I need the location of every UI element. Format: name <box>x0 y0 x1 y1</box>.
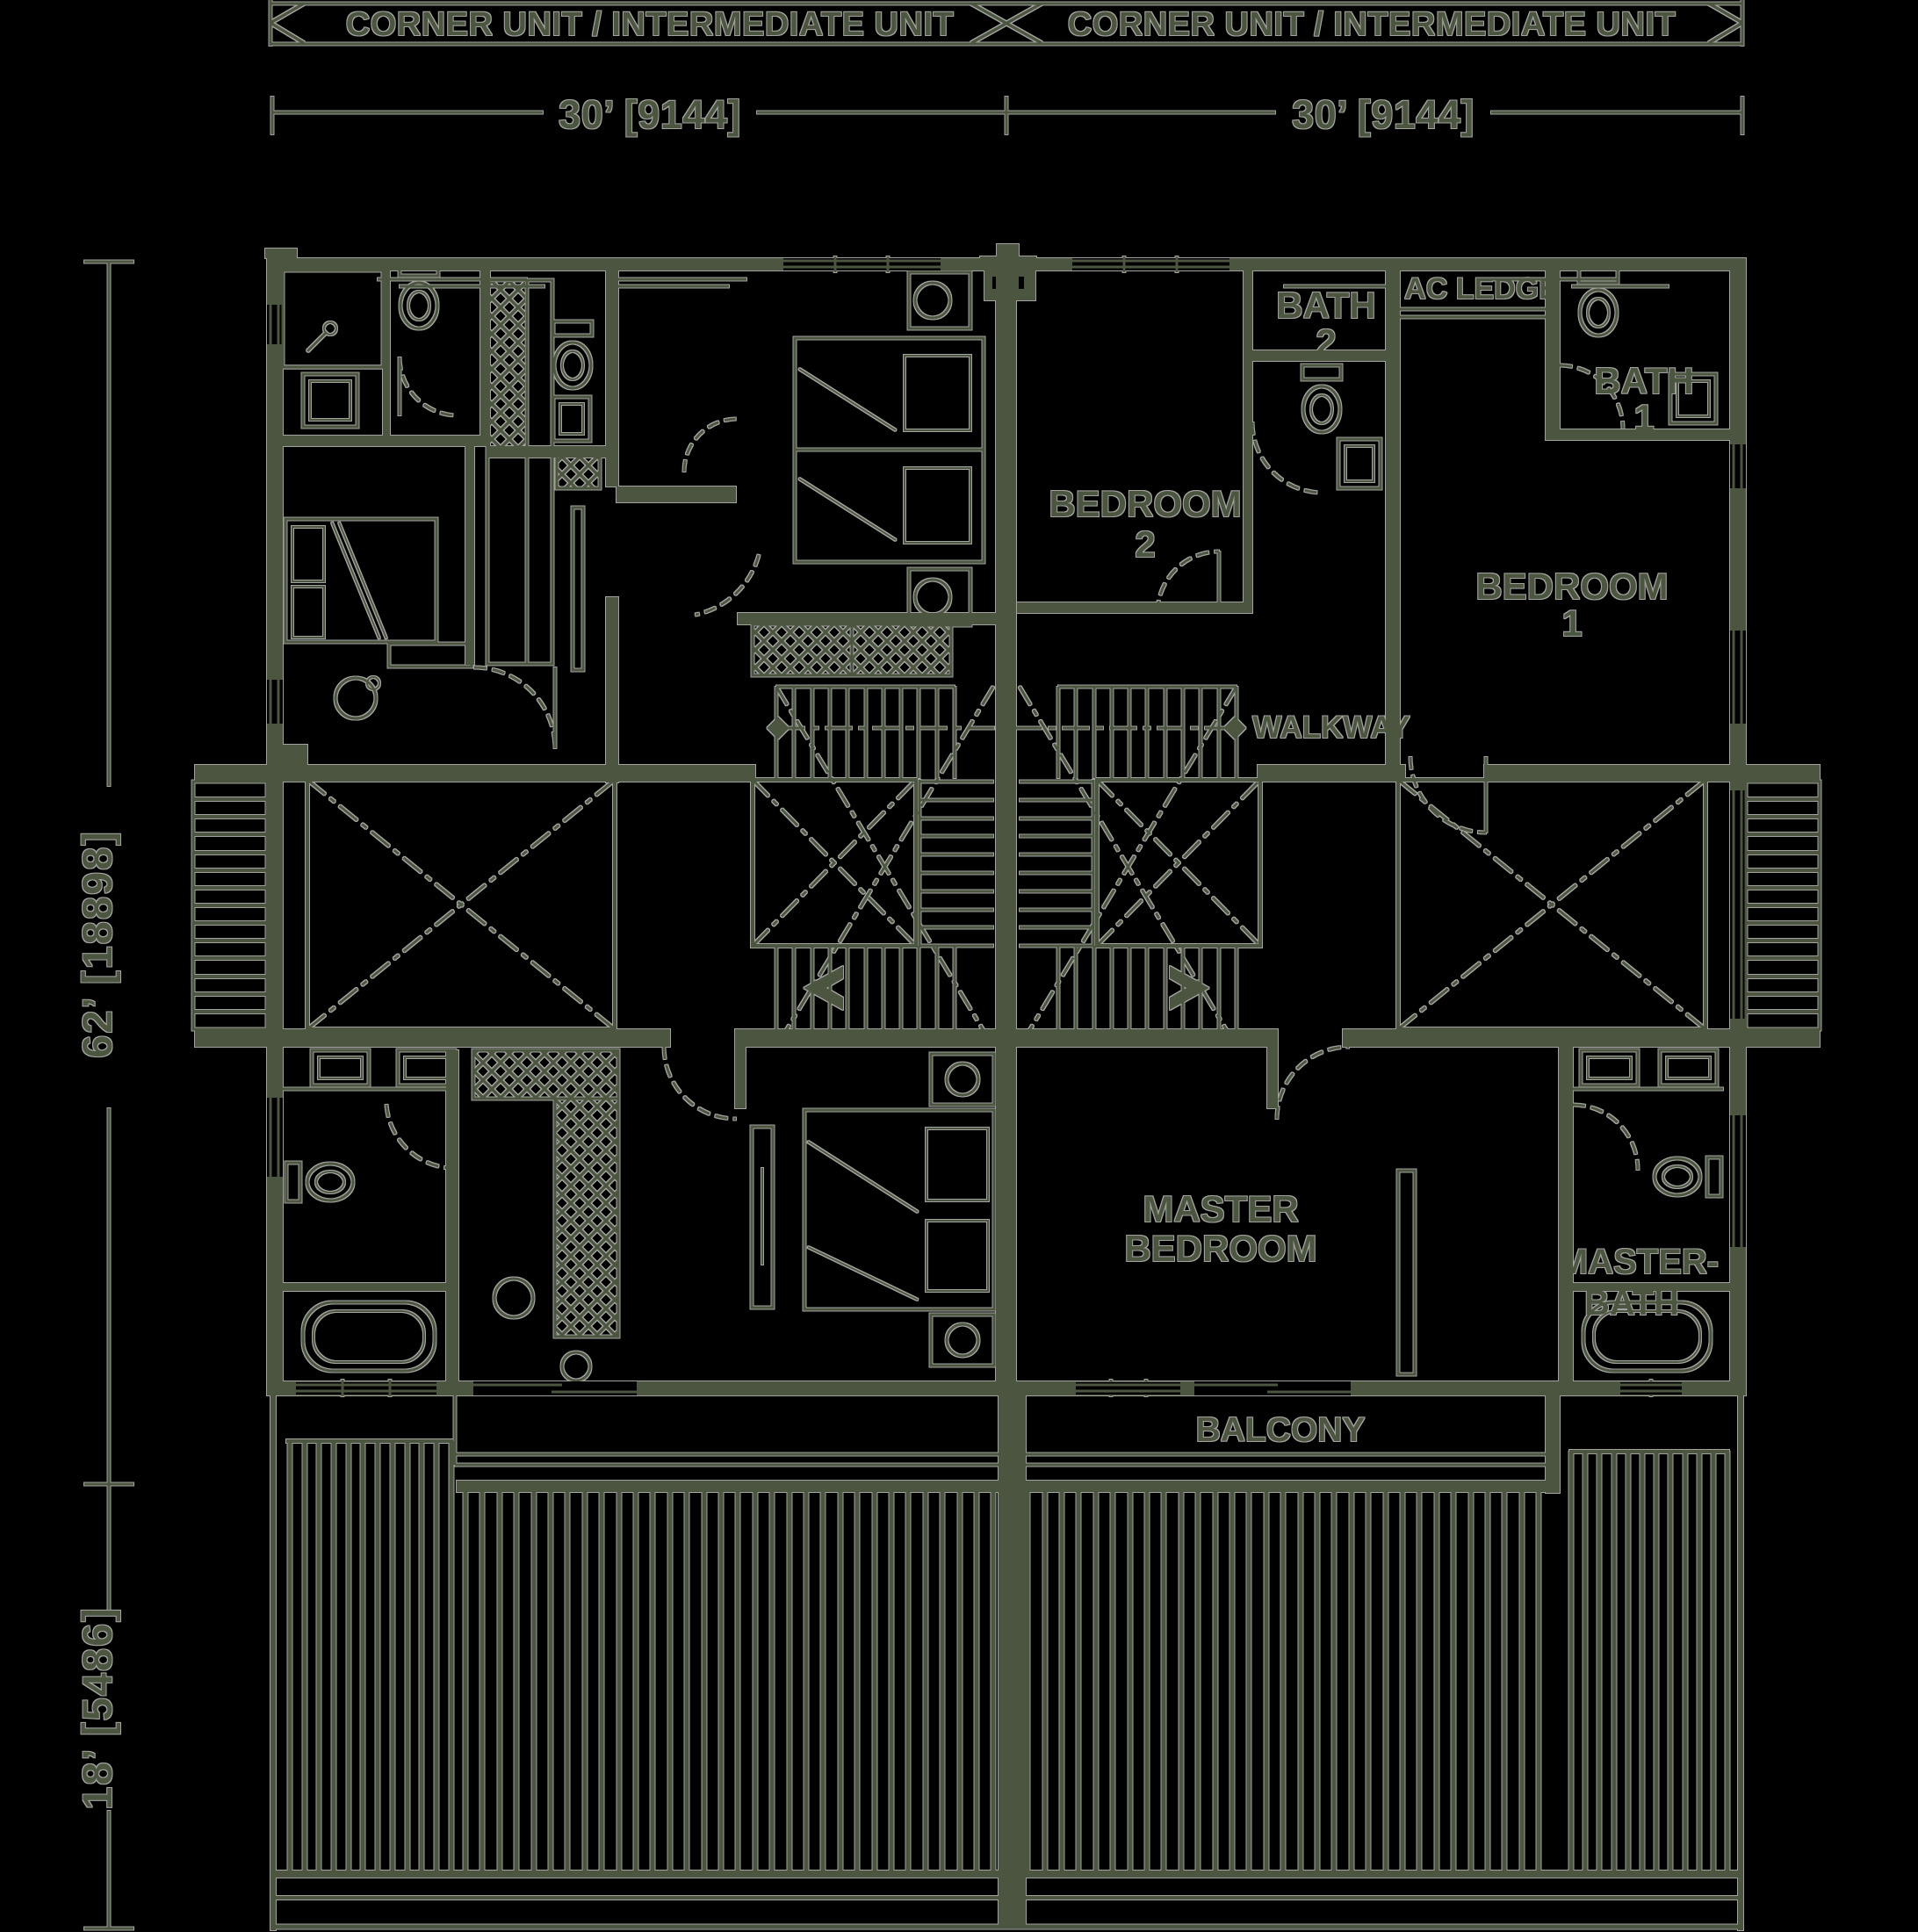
svg-text:CORNER UNIT / INTERMEDIATE UNI: CORNER UNIT / INTERMEDIATE UNIT <box>346 6 954 43</box>
svg-text:AC LEDGE: AC LEDGE <box>1404 272 1559 306</box>
svg-text:30’ [9144]: 30’ [9144] <box>559 92 741 137</box>
svg-text:WALKWAY: WALKWAY <box>1252 710 1410 745</box>
svg-text:BALCONY: BALCONY <box>1196 1411 1366 1449</box>
svg-text:BATH: BATH <box>1276 285 1376 326</box>
svg-text:CORNER UNIT / INTERMEDIATE UNI: CORNER UNIT / INTERMEDIATE UNIT <box>1068 6 1676 43</box>
svg-text:1: 1 <box>1633 397 1654 438</box>
svg-text:18’ [5486]: 18’ [5486] <box>74 1606 120 1810</box>
svg-text:MASTER-: MASTER- <box>1559 1243 1719 1281</box>
svg-text:30’ [9144]: 30’ [9144] <box>1292 92 1475 137</box>
svg-text:2: 2 <box>1135 523 1155 565</box>
svg-text:BEDROOM: BEDROOM <box>1049 483 1241 524</box>
svg-text:62’ [18898]: 62’ [18898] <box>74 830 120 1058</box>
svg-text:BEDROOM: BEDROOM <box>1475 566 1668 607</box>
svg-text:1: 1 <box>1561 602 1582 644</box>
svg-text:BEDROOM: BEDROOM <box>1124 1228 1316 1269</box>
svg-text:2: 2 <box>1316 321 1336 363</box>
svg-text:MASTER: MASTER <box>1143 1188 1298 1229</box>
